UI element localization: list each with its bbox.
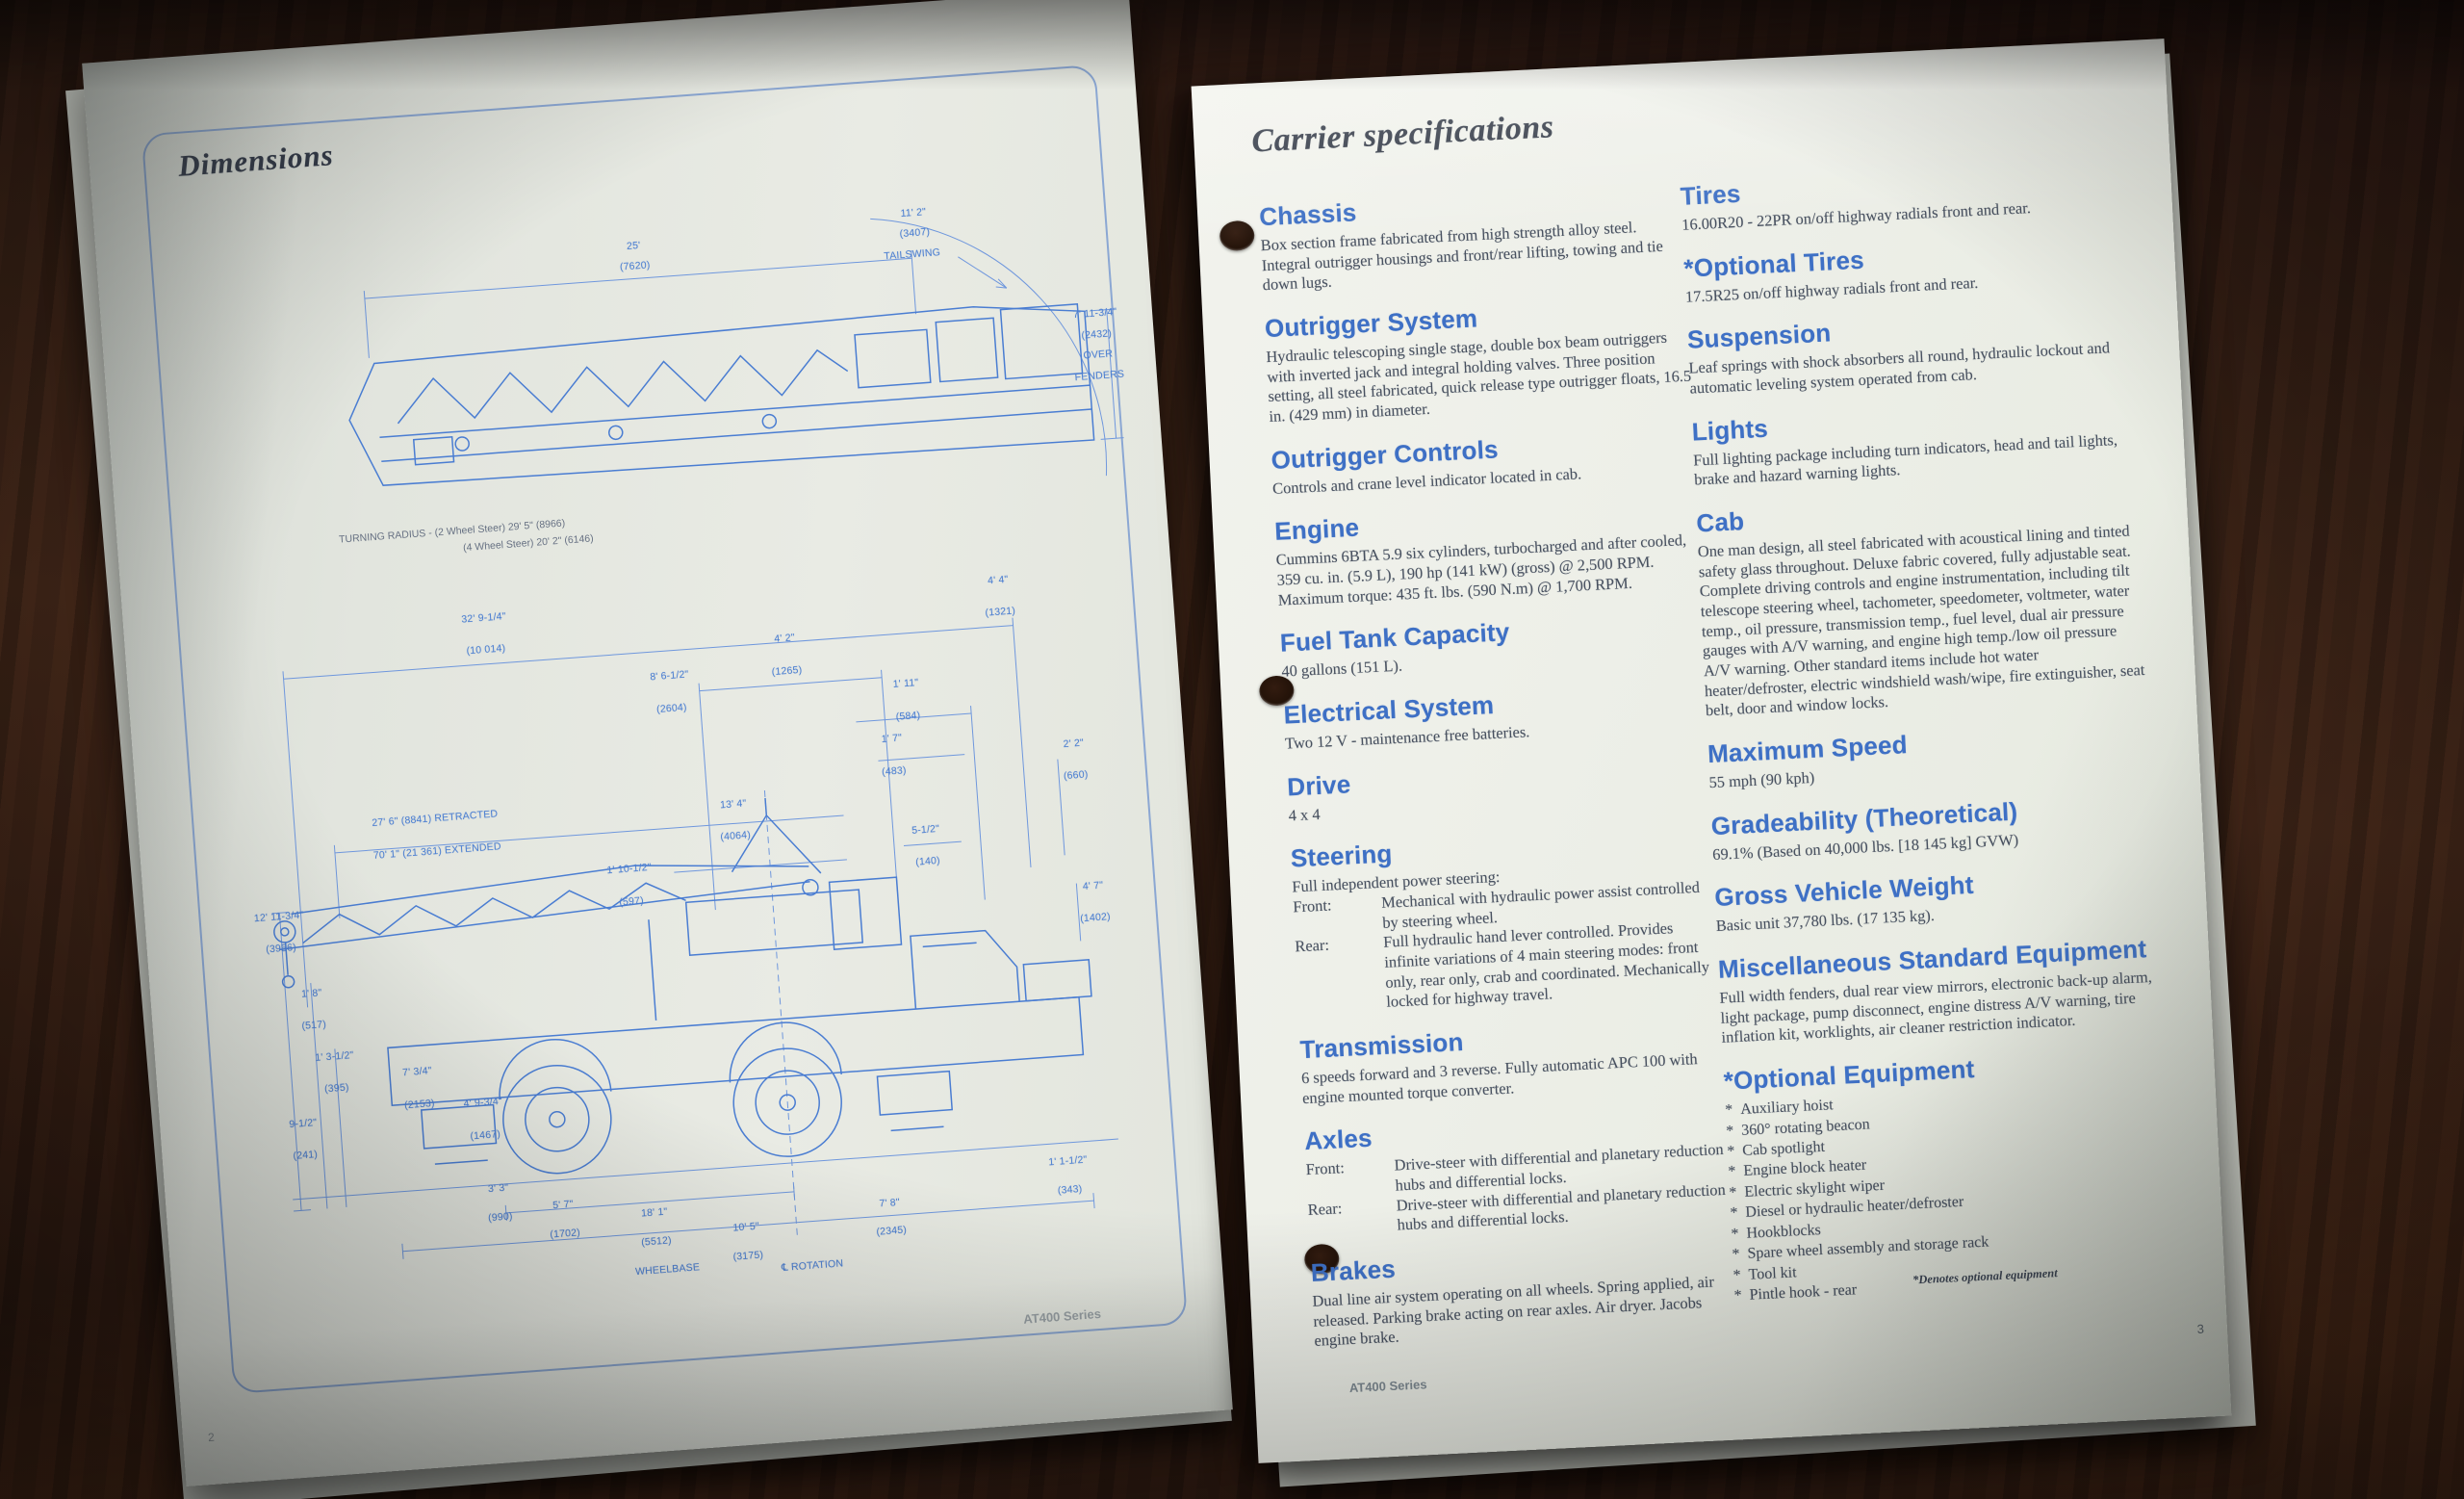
row-label: Rear: [1295,933,1387,1017]
dimension-label: 18' 1" [641,1206,668,1220]
dimension-label: (3407) [899,226,930,240]
dimension-label: 10' 5" [732,1221,759,1234]
dimension-label: (140) [915,855,940,868]
dimension-label: (1402) [1080,911,1111,924]
spec-section: Transmission6 speeds forward and 3 rever… [1299,1015,1728,1109]
section-paragraph: One man design, all steel fabricated wit… [1697,521,2146,721]
spec-section: SteeringFull independent power steering:… [1290,823,1723,1017]
spec-section: Outrigger SystemHydraulic telescoping si… [1264,294,1694,427]
dimension-label: 1' 7" [881,732,902,745]
side-view-lineart [210,533,1165,1315]
dimension-label: (1467) [470,1128,500,1142]
plan-view-drawing: 25'(7620)11' 2"(3407)TAILSWING7' 11-3/4"… [294,185,1142,562]
bullet-marker: * [1726,1121,1742,1142]
photo-scene: Dimensions [0,0,2464,1499]
page-number: 2 [208,1431,216,1444]
dimensions-page: Dimensions [82,0,1233,1486]
dimension-label: (5512) [641,1234,672,1248]
brand-footer: AT400 Series [1349,1377,1427,1395]
option-text: Pintle hook - rear [1749,1279,1857,1305]
spec-section: Fuel Tank Capacity40 gallons (151 L). [1279,608,1707,683]
spec-section: Gradeability (Theoretical)69.1% (Based o… [1710,789,2153,865]
dimension-label: 13' 4" [720,797,747,811]
dimension-label: (1321) [985,605,1015,618]
dimension-label: (2604) [656,701,687,714]
dimension-label: 1' 11" [892,677,918,690]
dimension-label: (3175) [732,1250,763,1263]
spec-section: BrakesDual line air system operating on … [1310,1238,1739,1352]
bullet-marker: * [1732,1244,1748,1265]
spec-section: Miscellaneous Standard EquipmentFull wid… [1717,934,2162,1048]
bullet-marker: * [1728,1161,1744,1182]
dimension-label: (517) [301,1019,326,1032]
dimension-label: (660) [1064,768,1089,782]
bullet-marker: * [1733,1285,1750,1306]
plan-view-lineart [294,185,1142,562]
dimension-label: 25' [627,240,641,252]
dimension-label: (2432) [1081,327,1112,341]
carrier-specifications-page: Carrier specifications ChassisBox sectio… [1192,39,2232,1463]
dimension-label: 5-1/2" [911,823,940,837]
spec-section: Maximum Speed55 mph (90 kph) [1707,718,2149,793]
spec-section: LightsFull lighting package including tu… [1691,396,2135,491]
spec-section: *Optional Tires17.5R25 on/off highway ra… [1683,232,2126,307]
spec-section: Electrical SystemTwo 12 V - maintenance … [1283,680,1710,754]
spec-section: ChassisBox section frame fabricated from… [1259,182,1688,296]
dimension-label: (584) [895,710,920,723]
option-text: Tool kit [1748,1262,1797,1285]
page-title: Carrier specifications [1251,109,1555,160]
page-number: 3 [2196,1322,2204,1336]
dimension-label: (483) [882,764,907,778]
bullet-marker: * [1731,1224,1747,1245]
dimension-label: 7' 3/4" [402,1065,432,1078]
row-text: Full hydraulic hand lever controlled. Pr… [1383,917,1724,1013]
dimension-label: (990) [488,1210,513,1224]
dimension-label: (343) [1057,1182,1082,1196]
dimension-label: 5' 7" [552,1199,574,1212]
bullet-marker: * [1732,1264,1749,1285]
dimension-label: 3' 3" [488,1181,509,1195]
spec-section: Drive4 x 4 [1287,752,1714,826]
spec-section: Outrigger ControlsControls and crane lev… [1270,425,1698,499]
dimension-label: (395) [324,1082,349,1096]
spec-column-right: Tires16.00R20 - 22PR on/off highway radi… [1680,161,2176,1325]
dimension-label: (3956) [266,942,296,955]
dimension-label: 4' 7" [1082,879,1103,892]
spec-section: CabOne man design, all steel fabricated … [1696,487,2146,721]
dimension-label: 4' 4" [988,573,1009,586]
row-label: Front: [1305,1156,1396,1201]
dimension-label: (4064) [720,830,751,843]
spec-section: *Optional Equipment*Auxiliary hoist*360°… [1723,1046,2175,1306]
dimension-label: 4' 2" [774,633,795,646]
section-paragraph: Hydraulic telescoping single stage, doub… [1266,327,1695,427]
bullet-marker: * [1725,1099,1741,1121]
dimension-label: (2345) [876,1225,907,1238]
spec-column-left: ChassisBox section frame fabricated from… [1259,182,1741,1370]
dimension-label: (1265) [771,664,802,678]
spec-section: EngineCummins 6BTA 5.9 six cylinders, tu… [1274,497,1704,610]
spec-section: AxlesFront:Drive-steer with differential… [1304,1106,1734,1240]
dimension-label: 2' 2" [1063,737,1084,750]
dimension-label: 7' 8" [879,1196,900,1209]
bullet-marker: * [1729,1182,1745,1203]
dimension-label: (241) [293,1149,318,1162]
bullet-marker: * [1727,1141,1743,1162]
dimension-label: (7620) [620,260,651,273]
dimension-label: 11' 2" [900,206,926,220]
dimension-label: (597) [619,894,644,908]
spec-section: SuspensionLeaf springs with shock absorb… [1686,304,2130,400]
row-label: Rear: [1307,1196,1398,1240]
spec-section: Gross Vehicle WeightBasic unit 37,780 lb… [1714,862,2157,937]
spec-section: Tires16.00R20 - 22PR on/off highway radi… [1680,161,2122,236]
dimension-label: (2153) [404,1098,435,1111]
bullet-marker: * [1730,1202,1746,1224]
row-label: Front: [1293,893,1383,938]
punch-hole [1219,220,1255,252]
dimension-label: 1' 8" [301,987,322,1000]
dimension-label: (1702) [550,1227,580,1240]
side-view-drawing: 32' 9-1/4"(10 014)4' 2"(1265)4' 4"(1321)… [210,533,1165,1315]
dimension-label: OVER [1083,349,1113,362]
dimension-label: 9-1/2" [289,1117,318,1130]
